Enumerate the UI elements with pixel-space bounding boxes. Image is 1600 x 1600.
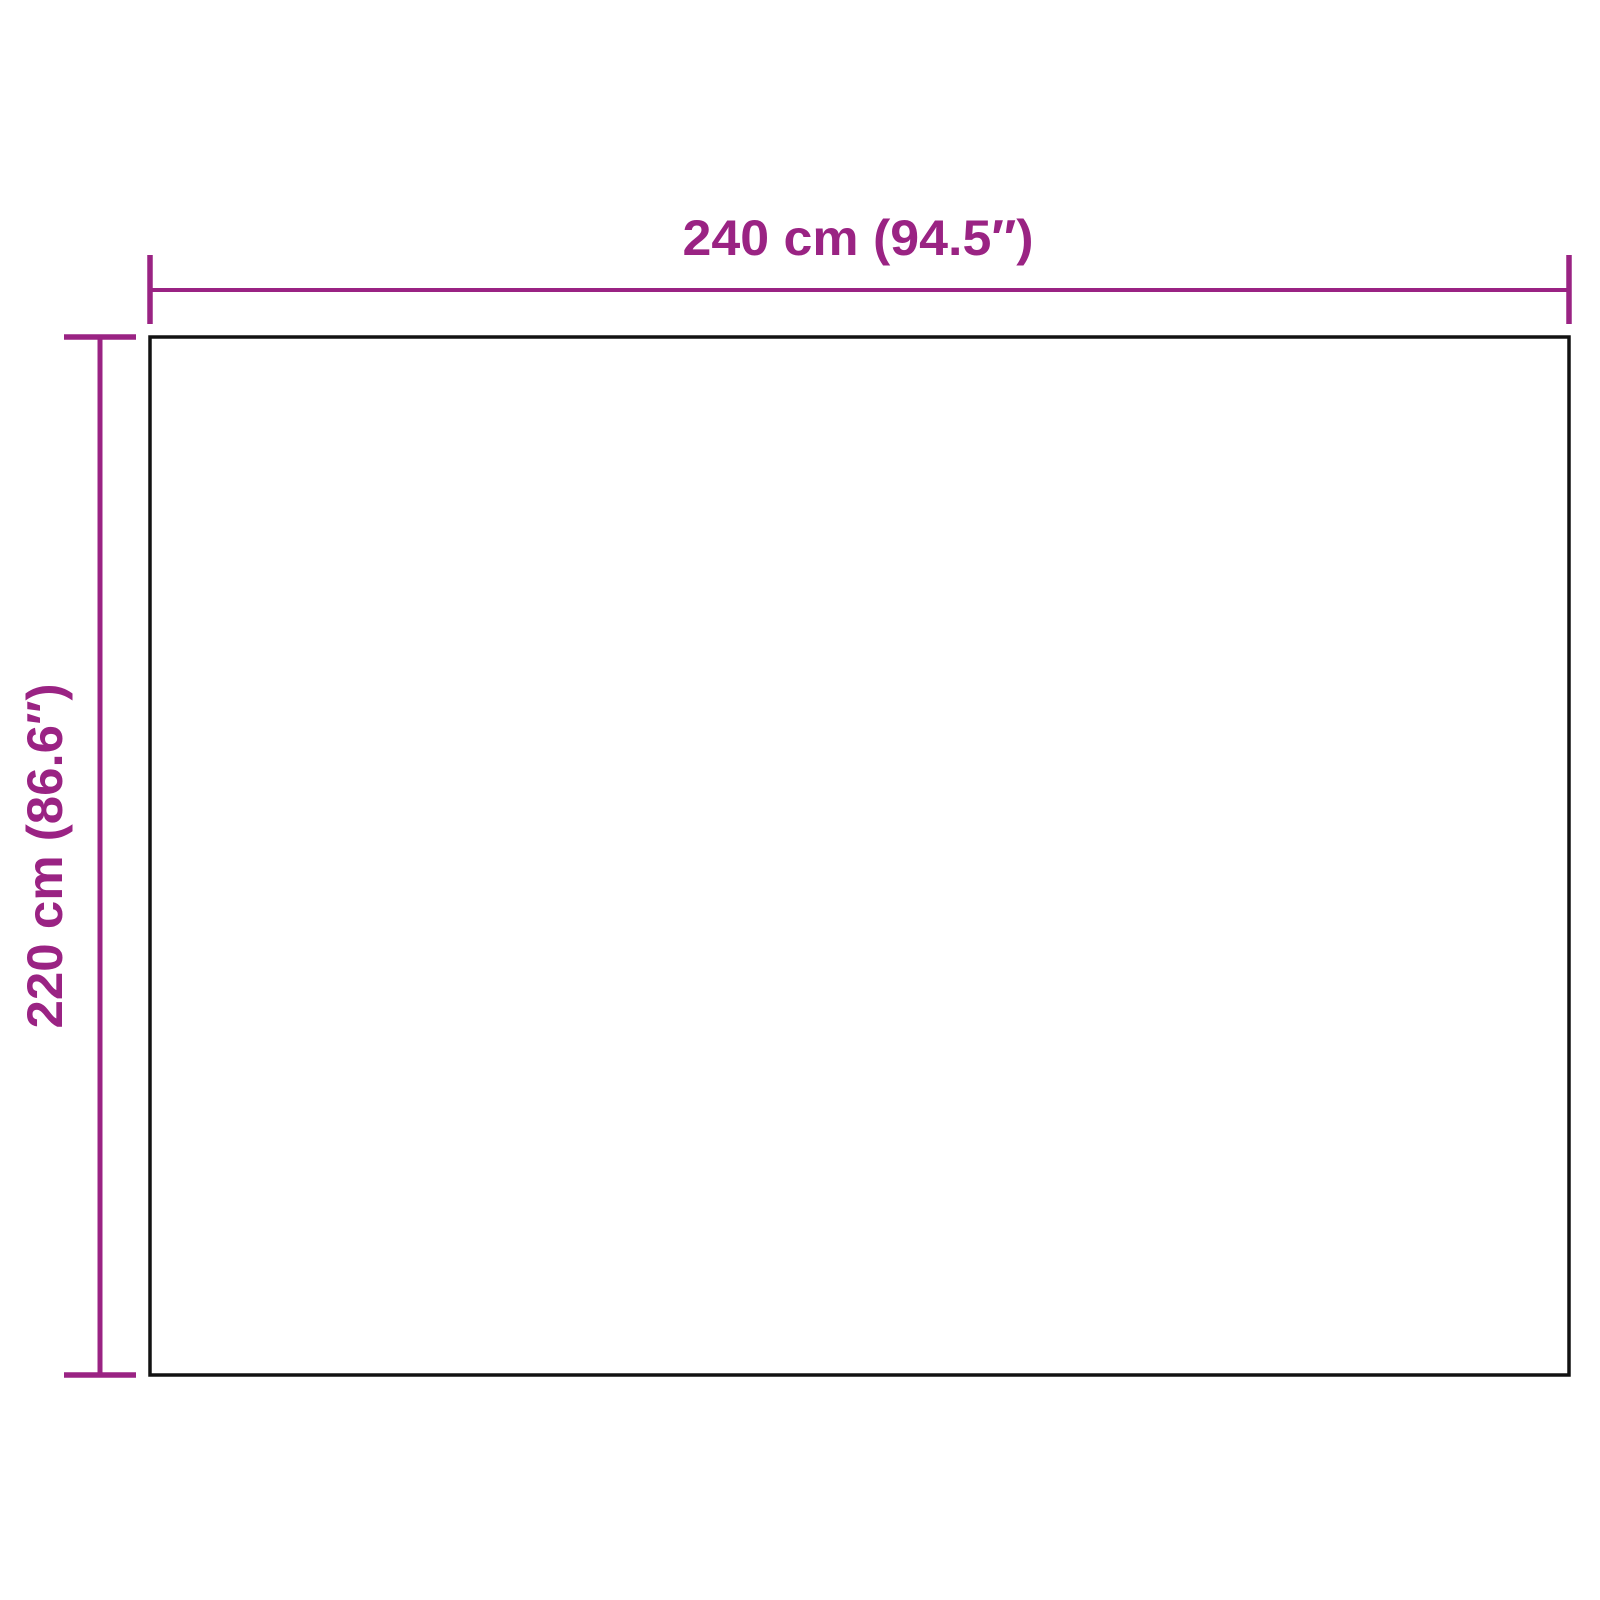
svg-text:240 cm (94.5″): 240 cm (94.5″) [683, 210, 1034, 266]
svg-text:220 cm (86.6″): 220 cm (86.6″) [17, 684, 73, 1029]
